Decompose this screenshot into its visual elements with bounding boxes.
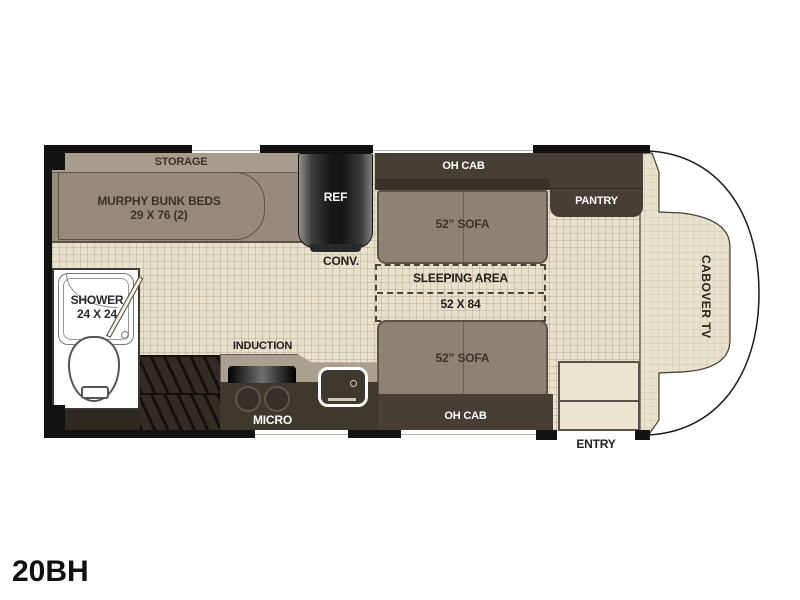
oh-cab-bottom-label: OH CAB [378,411,553,423]
cabinet-under-bath [52,408,140,430]
sink-drain [350,380,357,387]
ref-label: REF [298,191,373,204]
sleeping-area-divider [377,292,544,294]
entry-label: ENTRY [556,438,636,451]
oh-cab-top-label: OH CAB [375,161,552,173]
wardrobe-hatch-top [140,357,220,393]
refrigerator-base [310,244,361,252]
cabover-tv-label: CABOVER TV [690,249,712,345]
cabinet-trim [375,179,552,190]
wall-corner-bottom-left [44,405,65,438]
window-sill-bottom-2 [401,434,536,435]
wall-bottom-4 [635,430,650,440]
wardrobe [140,355,220,430]
sleeping-dims-label: 52 X 84 [375,298,546,311]
wall-top-1 [44,145,192,153]
bathroom [52,268,140,410]
wall-bottom-3 [536,430,557,440]
murphy-beds-label: MURPHY BUNK BEDS [88,195,230,208]
micro-label: MICRO [220,414,325,427]
sofa-top-label: 52” SOFA [377,218,548,231]
conv-label: CONV. [306,255,376,268]
sink-faucet [328,398,356,401]
murphy-dims-label: 29 X 76 (2) [88,209,230,222]
floorplan-canvas: CABOVER TV STORAGE MURPHY BUNK BEDS 29 X… [0,0,800,600]
induction-label: INDUCTION [210,341,315,353]
shower-knob [121,331,129,339]
sleeping-area-label: SLEEPING AREA [375,272,546,285]
burner-left [235,386,261,412]
wall-top-2 [260,145,373,153]
wall-left [44,145,52,438]
wardrobe-hatch-bottom [140,395,220,430]
pantry-label: PANTRY [550,196,643,208]
storage-label: STORAGE [120,157,242,169]
entry-step-divider [560,400,638,402]
wall-top-3 [533,145,650,153]
wall-corner-top-left [44,145,65,170]
model-label: 20BH [12,556,89,588]
window-sill-bottom-1 [255,434,348,435]
burner-right [264,386,290,412]
sofa-bottom-label: 52” SOFA [377,352,548,365]
kitchen-sink [318,367,368,407]
window-sill-top-2 [373,150,533,151]
induction-cooktop [228,366,296,383]
wall-bottom-1 [44,430,255,438]
entry-step [558,361,640,431]
wall-bottom-2 [348,430,401,438]
toilet-tank [81,386,109,399]
window-sill-top-1 [192,150,260,151]
pantry-shelf-line [550,188,643,189]
